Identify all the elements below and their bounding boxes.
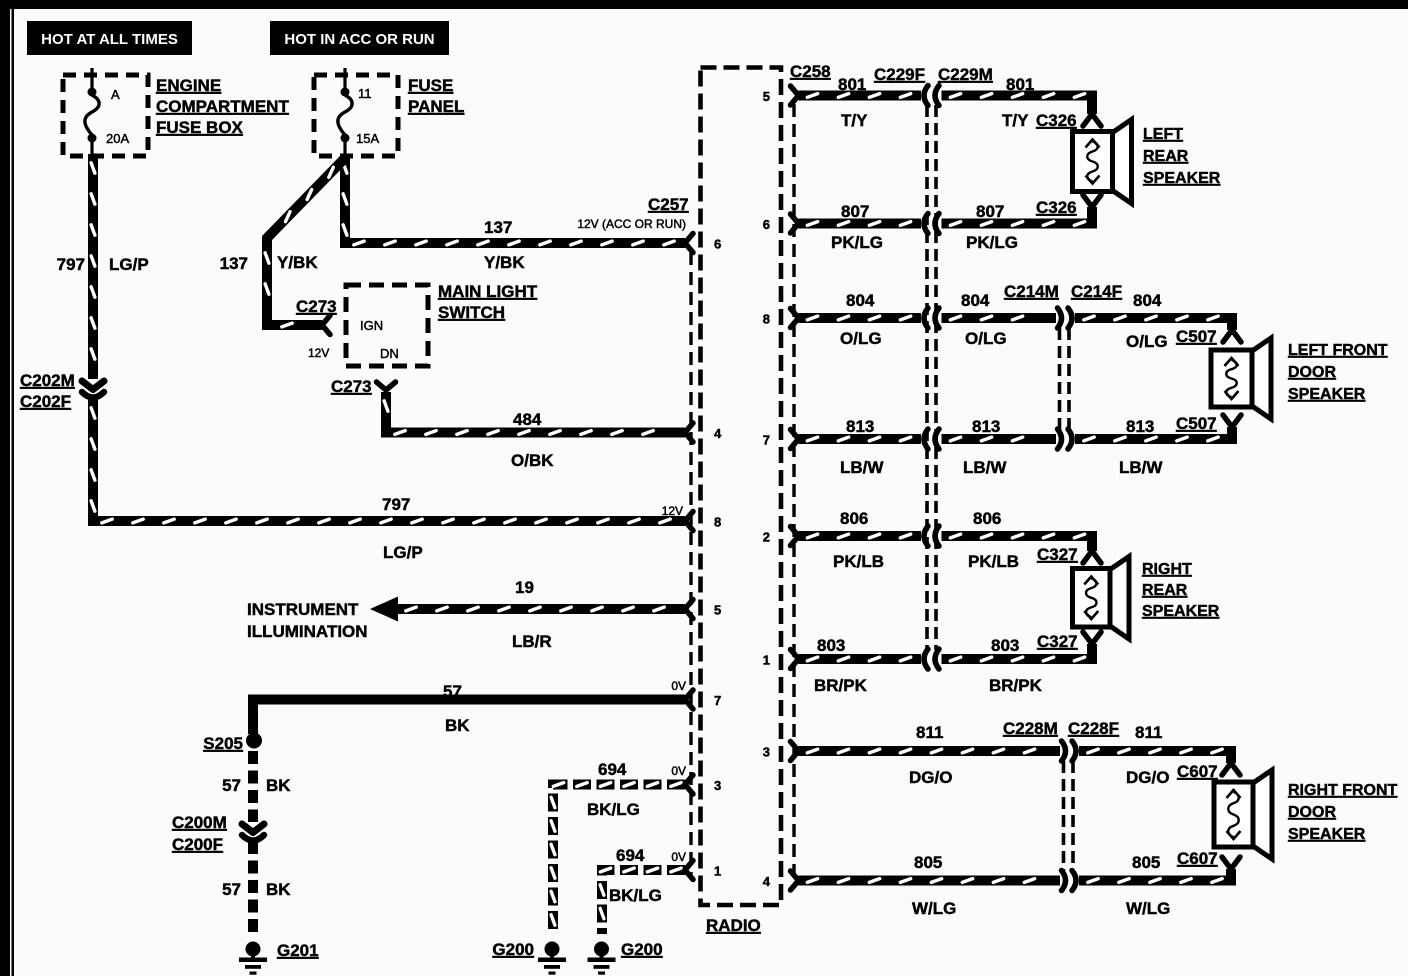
svg-text:LEFT: LEFT: [1143, 126, 1183, 143]
svg-text:SPEAKER: SPEAKER: [1142, 603, 1220, 620]
svg-text:BK: BK: [266, 880, 291, 899]
svg-text:DG/O: DG/O: [909, 768, 952, 787]
svg-text:484: 484: [513, 410, 542, 429]
svg-text:LB/W: LB/W: [963, 458, 1007, 477]
svg-text:IGN: IGN: [360, 318, 383, 333]
svg-text:4: 4: [763, 874, 771, 889]
svg-text:REAR: REAR: [1143, 148, 1189, 165]
svg-text:C228M: C228M: [1003, 719, 1058, 738]
svg-text:57: 57: [222, 776, 241, 795]
svg-text:BK: BK: [445, 716, 470, 735]
svg-text:0V: 0V: [671, 679, 686, 693]
svg-text:C607: C607: [1177, 849, 1218, 868]
svg-text:805: 805: [1132, 853, 1160, 872]
svg-text:797: 797: [57, 255, 85, 274]
svg-text:15A: 15A: [356, 131, 379, 146]
svg-text:BK: BK: [266, 776, 291, 795]
svg-text:REAR: REAR: [1142, 582, 1188, 599]
svg-text:BK/LG: BK/LG: [609, 886, 662, 905]
svg-text:C326: C326: [1036, 198, 1077, 217]
svg-text:11: 11: [358, 86, 372, 101]
svg-text:57: 57: [222, 880, 241, 899]
svg-text:LG/P: LG/P: [383, 543, 423, 562]
svg-text:57: 57: [443, 682, 462, 701]
svg-text:1: 1: [763, 653, 770, 668]
svg-text:BR/PK: BR/PK: [814, 676, 868, 695]
svg-text:6: 6: [714, 237, 721, 252]
svg-text:813: 813: [972, 417, 1000, 436]
svg-text:7: 7: [714, 693, 721, 708]
svg-text:807: 807: [976, 202, 1004, 221]
svg-text:804: 804: [961, 291, 990, 310]
svg-text:PK/LG: PK/LG: [831, 233, 883, 252]
svg-text:LB/R: LB/R: [512, 632, 552, 651]
svg-text:RADIO: RADIO: [706, 916, 761, 935]
svg-text:4: 4: [714, 426, 722, 441]
svg-text:LB/W: LB/W: [840, 458, 884, 477]
svg-text:C214F: C214F: [1071, 282, 1122, 301]
svg-text:BR/PK: BR/PK: [989, 676, 1043, 695]
svg-text:PK/LB: PK/LB: [833, 552, 884, 571]
svg-text:12V (ACC OR RUN): 12V (ACC OR RUN): [577, 217, 686, 231]
svg-text:INSTRUMENT: INSTRUMENT: [247, 600, 359, 619]
svg-text:0V: 0V: [671, 850, 686, 864]
svg-text:O/LG: O/LG: [965, 329, 1007, 348]
svg-text:801: 801: [1006, 75, 1034, 94]
svg-text:MAIN LIGHT: MAIN LIGHT: [438, 282, 538, 301]
svg-text:SWITCH: SWITCH: [438, 303, 505, 322]
svg-text:DN: DN: [380, 346, 399, 361]
svg-text:C607: C607: [1177, 762, 1218, 781]
svg-text:797: 797: [382, 495, 410, 514]
svg-text:804: 804: [1133, 291, 1162, 310]
svg-text:COMPARTMENT: COMPARTMENT: [156, 97, 289, 116]
svg-text:811: 811: [1135, 723, 1162, 742]
svg-text:12V: 12V: [308, 346, 329, 360]
svg-text:C228F: C228F: [1068, 719, 1119, 738]
svg-text:DOOR: DOOR: [1288, 364, 1336, 381]
svg-text:Y/BK: Y/BK: [277, 253, 318, 272]
svg-text:DOOR: DOOR: [1288, 804, 1336, 821]
svg-text:5: 5: [763, 89, 770, 104]
svg-text:C327: C327: [1037, 545, 1078, 564]
svg-text:A: A: [111, 87, 120, 102]
svg-text:LG/P: LG/P: [109, 255, 149, 274]
svg-text:694: 694: [616, 846, 645, 865]
svg-text:G201: G201: [277, 941, 319, 960]
svg-text:806: 806: [973, 509, 1001, 528]
svg-text:C200F: C200F: [172, 835, 223, 854]
svg-text:BK/LG: BK/LG: [587, 800, 640, 819]
svg-text:2: 2: [763, 530, 770, 545]
svg-text:SPEAKER: SPEAKER: [1288, 826, 1366, 843]
svg-text:137: 137: [484, 218, 512, 237]
svg-text:C257: C257: [648, 195, 689, 214]
svg-text:805: 805: [914, 853, 942, 872]
svg-text:C327: C327: [1037, 632, 1078, 651]
svg-text:C202M: C202M: [20, 371, 75, 390]
svg-text:8: 8: [714, 515, 721, 530]
svg-text:804: 804: [846, 291, 875, 310]
svg-text:0V: 0V: [671, 764, 686, 778]
svg-text:RIGHT FRONT: RIGHT FRONT: [1288, 782, 1398, 799]
svg-text:C214M: C214M: [1004, 282, 1059, 301]
svg-text:12V: 12V: [662, 504, 683, 518]
svg-text:C200M: C200M: [172, 813, 227, 832]
svg-text:807: 807: [841, 202, 869, 221]
svg-text:813: 813: [1126, 417, 1154, 436]
svg-text:T/Y: T/Y: [1002, 111, 1029, 130]
svg-text:ENGINE: ENGINE: [156, 76, 221, 95]
svg-text:LB/W: LB/W: [1119, 458, 1163, 477]
svg-text:PK/LB: PK/LB: [968, 552, 1019, 571]
svg-text:HOT IN ACC OR RUN: HOT IN ACC OR RUN: [284, 31, 434, 48]
svg-text:C273: C273: [296, 297, 337, 316]
svg-text:6: 6: [763, 217, 770, 232]
svg-text:W/LG: W/LG: [1126, 899, 1170, 918]
svg-text:T/Y: T/Y: [841, 111, 868, 130]
svg-text:3: 3: [763, 745, 770, 760]
svg-text:ILLUMINATION: ILLUMINATION: [247, 622, 368, 641]
svg-text:DG/O: DG/O: [1126, 768, 1169, 787]
svg-text:SPEAKER: SPEAKER: [1288, 386, 1366, 403]
svg-text:FUSE: FUSE: [408, 76, 453, 95]
svg-text:SPEAKER: SPEAKER: [1143, 170, 1221, 187]
svg-text:3: 3: [714, 778, 721, 793]
svg-text:813: 813: [846, 417, 874, 436]
svg-text:20A: 20A: [106, 131, 129, 146]
svg-text:7: 7: [763, 433, 770, 448]
svg-text:C229M: C229M: [938, 65, 993, 84]
svg-text:O/LG: O/LG: [1126, 332, 1168, 351]
svg-text:PANEL: PANEL: [408, 97, 464, 116]
svg-text:C326: C326: [1036, 111, 1077, 130]
svg-text:803: 803: [991, 636, 1019, 655]
svg-text:RIGHT: RIGHT: [1142, 561, 1192, 578]
svg-text:O/LG: O/LG: [840, 329, 882, 348]
svg-text:8: 8: [763, 312, 770, 327]
svg-text:806: 806: [840, 509, 868, 528]
svg-text:803: 803: [817, 636, 845, 655]
svg-text:PK/LG: PK/LG: [966, 233, 1018, 252]
svg-text:19: 19: [515, 578, 534, 597]
svg-text:FUSE BOX: FUSE BOX: [156, 118, 244, 137]
svg-text:C273: C273: [331, 377, 372, 396]
svg-text:1: 1: [714, 864, 721, 879]
svg-text:C229F: C229F: [874, 65, 925, 84]
svg-text:C507: C507: [1176, 414, 1217, 433]
svg-text:694: 694: [598, 760, 627, 779]
svg-text:C258: C258: [790, 62, 831, 81]
svg-text:C507: C507: [1176, 327, 1217, 346]
svg-text:C202F: C202F: [20, 392, 71, 411]
svg-text:Y/BK: Y/BK: [484, 253, 525, 272]
svg-text:811: 811: [916, 723, 943, 742]
svg-text:LEFT FRONT: LEFT FRONT: [1288, 342, 1388, 359]
svg-text:G200: G200: [621, 940, 663, 959]
svg-text:801: 801: [838, 75, 866, 94]
svg-text:W/LG: W/LG: [912, 899, 956, 918]
svg-text:5: 5: [714, 603, 721, 618]
svg-text:O/BK: O/BK: [511, 451, 554, 470]
svg-text:137: 137: [220, 254, 248, 273]
svg-text:S205: S205: [203, 734, 243, 753]
svg-text:HOT AT ALL TIMES: HOT AT ALL TIMES: [41, 31, 178, 48]
svg-text:G200: G200: [492, 940, 534, 959]
